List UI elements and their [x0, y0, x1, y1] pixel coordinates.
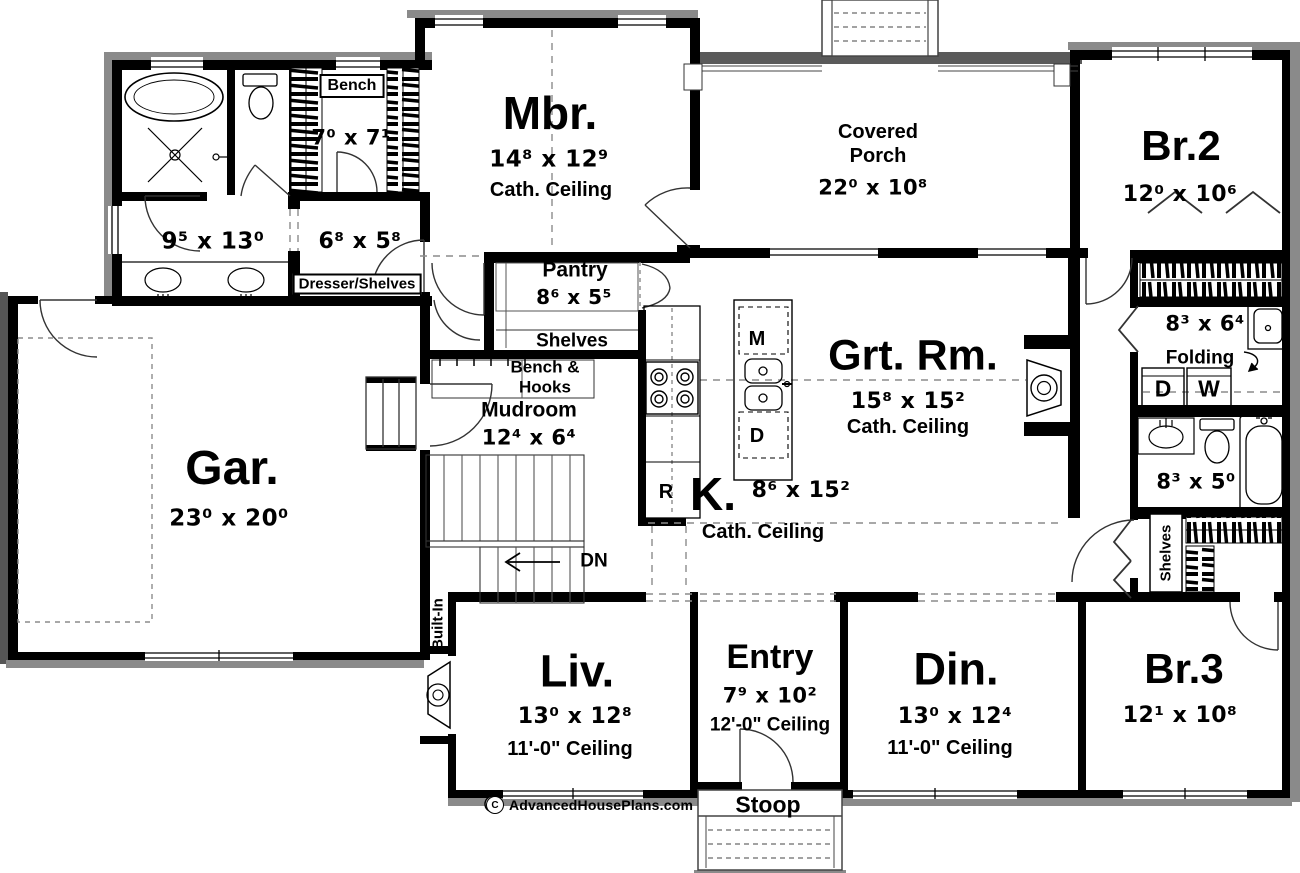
- room-dim-kitchen: 8⁶ x 15²: [752, 480, 851, 502]
- label-island-dishwasher: D: [750, 426, 764, 446]
- room-ceiling-great-room: Cath. Ceiling: [847, 417, 969, 437]
- window: [978, 245, 1046, 259]
- room-name-dining: Din.: [914, 647, 999, 692]
- label-refrigerator: R: [659, 482, 673, 502]
- vanity-icon: [1138, 418, 1194, 454]
- room-name-covered-porch-1: Covered: [838, 122, 918, 142]
- window: [1123, 788, 1247, 799]
- room-name-stoop: Stoop: [735, 794, 800, 817]
- door-mbr-porch: [645, 188, 690, 248]
- living-fireplace: [427, 662, 450, 728]
- floor-plan-linework: [0, 0, 1300, 873]
- room-dim-laundry: 8³ x 6⁴: [1165, 314, 1244, 335]
- island: [734, 300, 792, 480]
- tub-icon: [125, 73, 223, 121]
- walls: [8, 18, 1290, 798]
- label-island-microwave: M: [749, 329, 766, 349]
- island-sink-icon: [745, 359, 792, 410]
- label-built-in: Built-In: [431, 598, 446, 650]
- room-name-entry: Entry: [727, 640, 814, 674]
- stairs-down: [426, 455, 584, 603]
- label-bench-closet: Bench: [320, 74, 385, 98]
- room-dim-pantry: 8⁶ x 5⁵: [536, 287, 612, 307]
- room-ceiling-living: 11'-0" Ceiling: [507, 739, 632, 759]
- room-ceiling-kitchen: Cath. Ceiling: [702, 522, 824, 542]
- window: [336, 57, 380, 71]
- room-dim-mudroom: 12⁴ x 6⁴: [482, 428, 576, 449]
- door-garage-entry: [40, 300, 97, 357]
- window: [618, 15, 666, 29]
- room-dim-master-bedroom: 14⁸ x 12⁹: [489, 149, 609, 172]
- room-dim-master-closet: 6⁸ x 5⁸: [319, 231, 402, 253]
- door-br3: [1230, 602, 1278, 650]
- door-toilet: [241, 165, 290, 196]
- toilet-icon: [1200, 419, 1234, 463]
- room-name-kitchen: K.: [690, 471, 736, 517]
- room-dim-great-room: 15⁸ x 15²: [851, 391, 966, 413]
- label-shelves-pantry: Shelves: [536, 332, 608, 351]
- label-dresser-shelves: Dresser/Shelves: [293, 274, 422, 295]
- window: [770, 245, 878, 259]
- room-name-mudroom: Mudroom: [481, 400, 577, 421]
- door-pantry-french: [642, 264, 670, 308]
- porch-beam: [684, 64, 1078, 90]
- room-dim-bath2: 8³ x 5⁰: [1156, 472, 1235, 493]
- garage-landing: [366, 377, 416, 449]
- brand-site-text: AdvancedHousePlans.com: [509, 797, 693, 813]
- room-dim-bedroom3: 12¹ x 10⁸: [1123, 705, 1238, 727]
- floor-plan: Mbr. 14⁸ x 12⁹ Cath. Ceiling Covered Por…: [0, 0, 1300, 873]
- room-name-living: Liv.: [540, 649, 614, 694]
- room-dim-master-bath: 9⁵ x 13⁰: [161, 231, 264, 254]
- door-bench-closet: [337, 152, 377, 192]
- door-br2: [1086, 258, 1132, 304]
- room-dim-dining: 13⁰ x 12⁴: [898, 706, 1013, 728]
- label-bench-hooks-2: Hooks: [519, 379, 571, 396]
- room-name-garage: Gar.: [185, 445, 278, 493]
- copyright-symbol: C: [486, 796, 504, 814]
- room-name-master-bedroom: Mbr.: [503, 90, 598, 136]
- window: [151, 57, 203, 71]
- label-shelves-closet: Shelves: [1159, 525, 1174, 582]
- window: [853, 788, 1017, 799]
- room-name-bedroom3: Br.3: [1144, 648, 1223, 690]
- master-bath-fixtures: [120, 73, 290, 303]
- room-dim-garage: 23⁰ x 20⁰: [169, 508, 289, 531]
- shower-icon: [148, 128, 227, 182]
- window: [435, 15, 483, 29]
- label-stairs-down: DN: [580, 552, 607, 571]
- room-name-covered-porch-2: Porch: [850, 146, 907, 166]
- garage-door: [145, 650, 293, 661]
- room-dim-bench-closet: 7⁰ x 7¹: [311, 128, 390, 149]
- room-ceiling-master-bedroom: Cath. Ceiling: [490, 180, 612, 200]
- room-name-great-room: Grt. Rm.: [828, 335, 998, 378]
- room-dim-living: 13⁰ x 12⁸: [518, 706, 633, 728]
- room-dim-bedroom2: 12⁰ x 10⁶: [1123, 184, 1238, 206]
- label-dryer: D: [1155, 378, 1172, 401]
- dashed-lines: [18, 30, 1280, 622]
- window: [1112, 47, 1252, 61]
- room-name-bedroom2: Br.2: [1141, 125, 1220, 167]
- folding-arrow-icon: [1244, 352, 1258, 371]
- bath2-fixtures: [1138, 416, 1288, 510]
- porch-steps: [822, 0, 938, 56]
- room-name-pantry: Pantry: [542, 260, 607, 281]
- door-mudroom-hall: [434, 300, 480, 340]
- room-ceiling-dining: 11'-0" Ceiling: [887, 738, 1012, 758]
- room-dim-entry: 7⁹ x 10²: [723, 686, 817, 707]
- label-washer: W: [1198, 378, 1220, 401]
- brand-logo: C AdvancedHousePlans.com: [486, 796, 693, 814]
- room-ceiling-entry: 12'-0" Ceiling: [710, 716, 830, 735]
- label-folding: Folding: [1166, 349, 1235, 368]
- great-room-fireplace: [1026, 349, 1070, 422]
- window: [108, 206, 122, 254]
- room-dim-covered-porch: 22⁰ x 10⁸: [818, 178, 928, 199]
- tub-icon: [1240, 416, 1288, 510]
- toilet-icon: [243, 74, 277, 119]
- door-mbr-hall: [432, 263, 484, 315]
- door-front: [740, 729, 793, 782]
- label-bench-hooks-1: Bench &: [511, 359, 580, 376]
